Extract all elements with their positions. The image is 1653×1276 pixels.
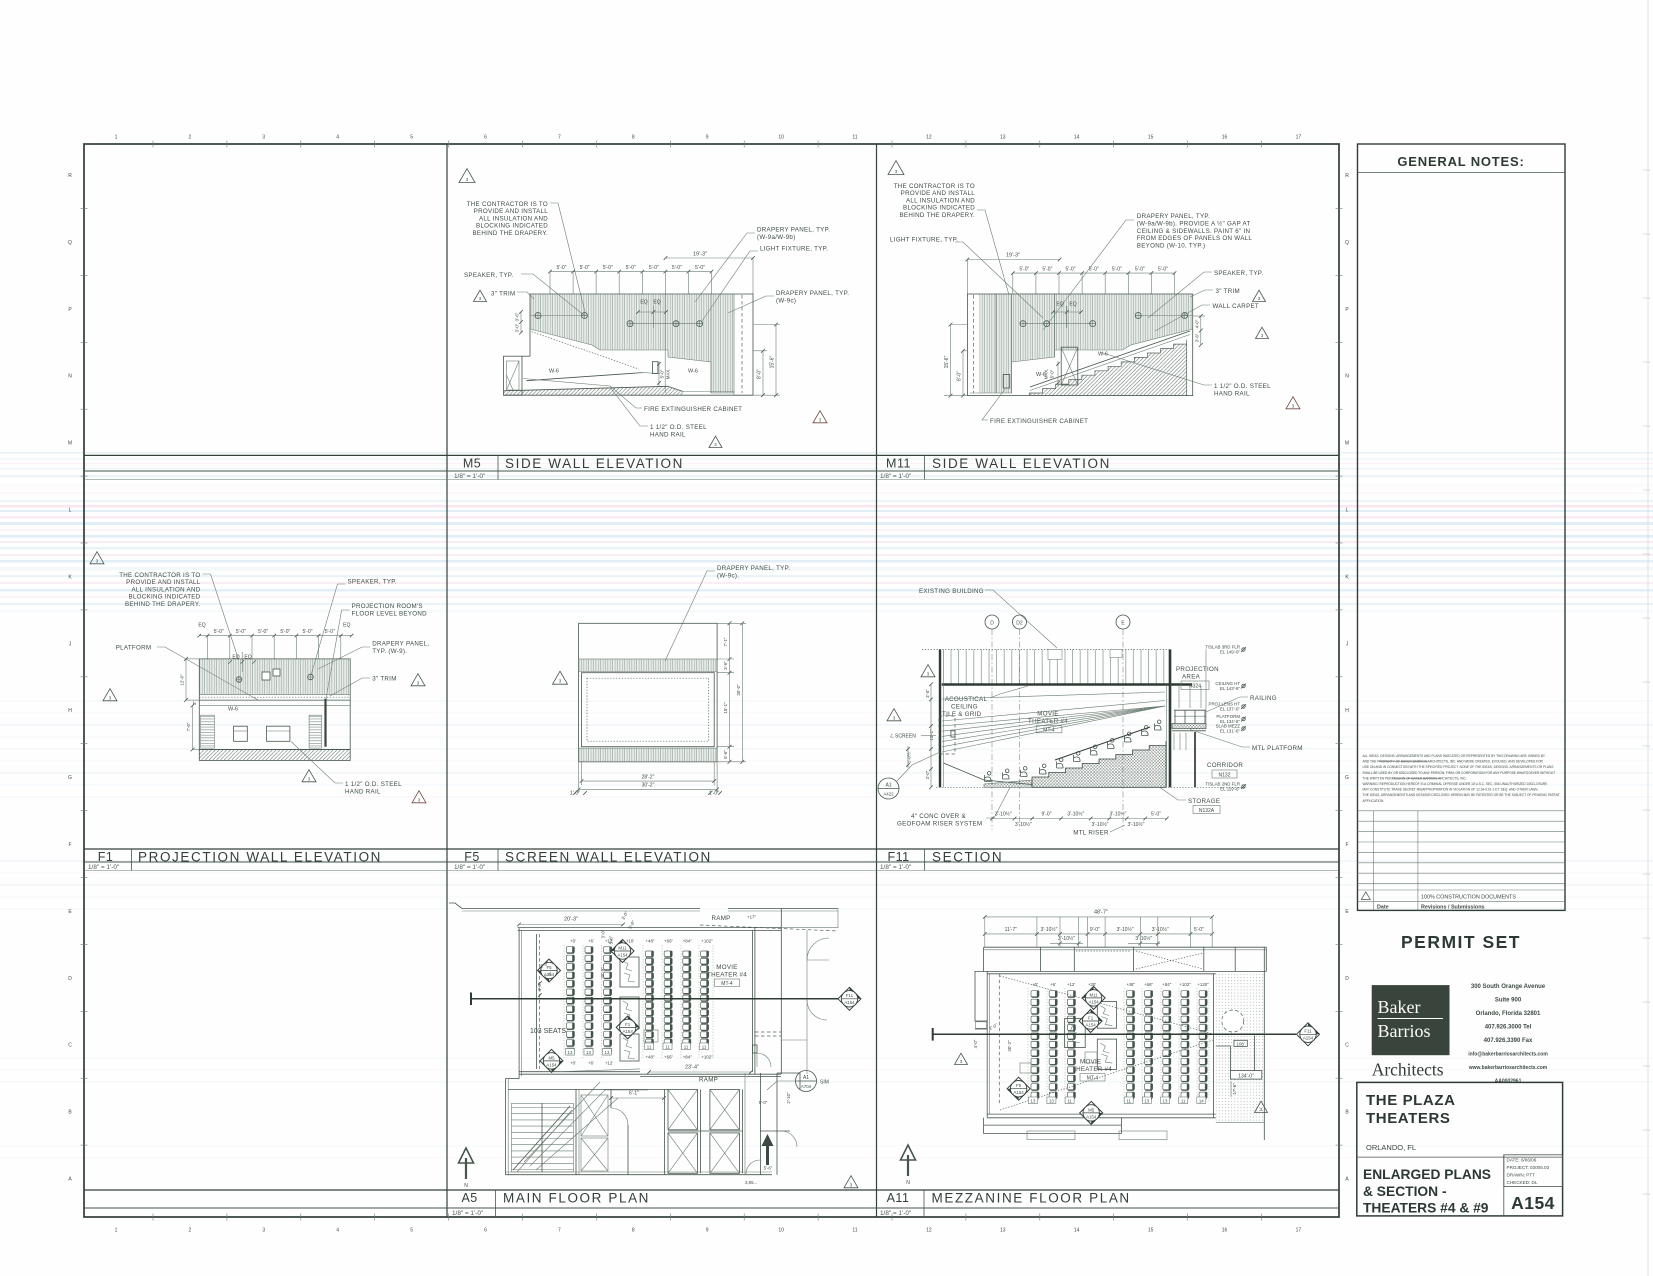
- svg-text:Q: Q: [68, 240, 72, 246]
- svg-text:11: 11: [1126, 1098, 1131, 1103]
- svg-text:N: N: [68, 374, 72, 380]
- svg-text:G: G: [1345, 775, 1349, 781]
- svg-text:BEHIND THE DRAPERY.: BEHIND THE DRAPERY.: [125, 601, 201, 608]
- svg-text:MTL RISER: MTL RISER: [1073, 830, 1109, 837]
- svg-text:11'-7": 11'-7": [1005, 927, 1018, 933]
- svg-text:CHECKED: DL: CHECKED: DL: [1507, 1180, 1538, 1185]
- svg-text:3'-6": 3'-6": [1194, 333, 1199, 342]
- svg-text:HAND RAIL: HAND RAIL: [1214, 391, 1250, 398]
- svg-text:13: 13: [1000, 135, 1006, 141]
- svg-text:M5: M5: [548, 1055, 555, 1060]
- svg-text:3'-10½": 3'-10½": [1015, 821, 1032, 828]
- svg-text:HAND RAIL: HAND RAIL: [345, 789, 381, 796]
- svg-text:1/8" = 1'-0": 1/8" = 1'-0": [880, 1210, 911, 1217]
- svg-text:M11: M11: [886, 457, 911, 471]
- svg-text:SIDE WALL ELEVATION: SIDE WALL ELEVATION: [932, 456, 1111, 471]
- svg-text:M: M: [1345, 441, 1349, 447]
- svg-text:BEHIND THE DRAPERY.: BEHIND THE DRAPERY.: [472, 230, 548, 237]
- svg-text:+48": +48": [1126, 982, 1135, 987]
- svg-text:R: R: [68, 173, 72, 179]
- svg-text:19'-3": 19'-3": [1006, 253, 1020, 259]
- svg-text:+102": +102": [701, 1055, 713, 1060]
- svg-text:7'-6": 7'-6": [186, 722, 191, 731]
- svg-text:N: N: [906, 1180, 910, 1186]
- svg-text:A704: A704: [801, 1084, 812, 1089]
- svg-text:G: G: [68, 775, 72, 781]
- svg-text:108': 108': [1237, 1041, 1245, 1046]
- svg-text:11: 11: [852, 1228, 857, 1234]
- svg-text:12: 12: [926, 135, 932, 141]
- svg-text:(W-9a/W-9b). PROVIDE A ½" GAP: (W-9a/W-9b). PROVIDE A ½" GAP AT: [1137, 220, 1251, 227]
- svg-text:13: 13: [586, 1050, 591, 1055]
- svg-text:6'-1": 6'-1": [629, 1091, 639, 1097]
- svg-text:N132: N132: [1219, 772, 1231, 778]
- svg-text:Revisions / Submissions: Revisions / Submissions: [1421, 904, 1485, 910]
- svg-text:A154: A154: [617, 952, 628, 957]
- svg-text:THEATER #4: THEATER #4: [1072, 1066, 1112, 1073]
- svg-text:SIM: SIM: [820, 1080, 829, 1086]
- svg-text:+6': +6': [588, 939, 594, 944]
- svg-text:H: H: [68, 708, 72, 714]
- svg-text:ENLARGED PLANS: ENLARGED PLANS: [1363, 1167, 1491, 1182]
- svg-text:1/8" = 1'-0": 1/8" = 1'-0": [454, 864, 485, 871]
- svg-text:3'-0": 3'-0": [601, 929, 606, 938]
- svg-text:D: D: [1345, 976, 1349, 982]
- svg-text:3'-10½": 3'-10½": [1040, 926, 1057, 933]
- svg-text:(W-9c).: (W-9c).: [717, 573, 739, 580]
- svg-text:9: 9: [706, 135, 709, 141]
- svg-text:EQ: EQ: [343, 623, 350, 629]
- svg-text:1 1/2" O.D. STEEL: 1 1/2" O.D. STEEL: [1214, 383, 1271, 390]
- svg-text:48'-7": 48'-7": [1094, 910, 1108, 916]
- svg-text:5'-0": 5'-0": [1135, 266, 1145, 272]
- svg-text:ALL INSULATION AND: ALL INSULATION AND: [906, 197, 975, 204]
- svg-text:5: 5: [410, 135, 413, 141]
- svg-text:MTL PLATFORM: MTL PLATFORM: [1252, 745, 1303, 752]
- svg-text:F11: F11: [887, 850, 909, 864]
- svg-text:5'-0": 5'-0": [626, 265, 636, 271]
- svg-text:5'-0": 5'-0": [214, 629, 224, 635]
- svg-text:100% CONSTRUCTION DOCUMENTS: 100% CONSTRUCTION DOCUMENTS: [1421, 894, 1516, 900]
- svg-text:3" TRIM: 3" TRIM: [372, 676, 396, 683]
- svg-text:5'-0": 5'-0": [759, 1100, 768, 1105]
- svg-text:W-6: W-6: [1098, 352, 1108, 358]
- svg-text:1/8" = 1'-0": 1/8" = 1'-0": [454, 473, 485, 480]
- svg-text:F5: F5: [464, 850, 480, 864]
- svg-text:R: R: [1345, 173, 1349, 179]
- svg-text:5'-0": 5'-0": [258, 629, 268, 635]
- svg-text:11: 11: [665, 1044, 670, 1049]
- svg-text:11: 11: [852, 135, 857, 141]
- svg-text:19'-3": 19'-3": [693, 252, 707, 258]
- svg-text:FIRE EXTINGUISHER CABINET: FIRE EXTINGUISHER CABINET: [644, 406, 742, 413]
- svg-text:5: 5: [410, 1228, 413, 1234]
- svg-text:+0': +0': [1032, 982, 1038, 987]
- svg-text:info@bakerbarriosarchitects.co: info@bakerbarriosarchitects.com: [1468, 1052, 1548, 1058]
- svg-text:PROVIDE AND INSTALL: PROVIDE AND INSTALL: [474, 208, 549, 215]
- svg-text:3'-10½": 3'-10½": [1109, 811, 1126, 818]
- svg-text:ORLANDO, FL: ORLANDO, FL: [1366, 1143, 1416, 1152]
- svg-text:Architects: Architects: [1372, 1060, 1444, 1080]
- svg-text:2: 2: [189, 135, 192, 141]
- svg-text:+66": +66": [664, 939, 673, 944]
- svg-text:A154: A154: [623, 1029, 634, 1034]
- svg-text:EXISTING BUILDING: EXISTING BUILDING: [919, 588, 984, 595]
- svg-text:3'-10½": 3'-10½": [1067, 811, 1084, 818]
- svg-text:5'-0": 5'-0": [557, 265, 567, 271]
- svg-text:5'-0": 5'-0": [1112, 266, 1122, 272]
- svg-text:GENERAL NOTES:: GENERAL NOTES:: [1397, 154, 1524, 169]
- svg-text:15'-1": 15'-1": [929, 729, 934, 741]
- svg-text:EL 137'-6": EL 137'-6": [1220, 707, 1240, 712]
- svg-text:PERMIT SET: PERMIT SET: [1401, 932, 1521, 952]
- svg-text:14: 14: [1074, 1228, 1080, 1234]
- svg-text:3'-0": 3'-0": [925, 770, 930, 779]
- svg-text:DRAPERY PANEL, TYP.: DRAPERY PANEL, TYP.: [1137, 213, 1210, 220]
- svg-text:N: N: [464, 1183, 468, 1189]
- svg-text:BLOCKING INDICATED: BLOCKING INDICATED: [476, 223, 548, 230]
- svg-text:6: 6: [484, 135, 487, 141]
- svg-text:TYP. (W-9).: TYP. (W-9).: [372, 648, 407, 655]
- svg-text:L: L: [1346, 508, 1349, 514]
- svg-text:(W-9a/W-9b): (W-9a/W-9b): [757, 234, 795, 241]
- svg-text:M5: M5: [1088, 1107, 1095, 1112]
- svg-text:1/8" = 1'-0": 1/8" = 1'-0": [452, 1210, 483, 1217]
- svg-text:5'-0": 5'-0": [649, 265, 659, 271]
- svg-text:1/8" = 1'-0": 1/8" = 1'-0": [880, 864, 911, 871]
- svg-text:8'-0": 8'-0": [757, 369, 763, 379]
- svg-text:11: 11: [647, 1044, 652, 1049]
- svg-text:4'-0": 4'-0": [1194, 319, 1199, 328]
- svg-text:13: 13: [568, 1050, 573, 1055]
- svg-text:3'-6": 3'-6": [515, 312, 520, 321]
- svg-text:+0': +0': [570, 939, 576, 944]
- svg-text:N132A: N132A: [1199, 808, 1215, 814]
- svg-text:3" TRIM: 3" TRIM: [491, 291, 515, 298]
- svg-text:L: L: [69, 508, 72, 514]
- svg-text:6: 6: [484, 1228, 487, 1234]
- svg-text:EL 143'-6": EL 143'-6": [1220, 686, 1240, 691]
- svg-text:+84": +84": [683, 1055, 692, 1060]
- svg-text:SPEAKER, TYP.: SPEAKER, TYP.: [1214, 270, 1263, 277]
- svg-text:FIRE EXTINGUISHER CABINET: FIRE EXTINGUISHER CABINET: [990, 418, 1088, 425]
- svg-text:1 1/2" O.D. STEEL: 1 1/2" O.D. STEEL: [650, 424, 707, 431]
- svg-text:5'-0": 5'-0": [280, 629, 290, 635]
- svg-text:A154: A154: [1088, 999, 1099, 1004]
- svg-text:8: 8: [632, 135, 635, 141]
- svg-text:DATE: 6/06/06: DATE: 6/06/06: [1507, 1158, 1537, 1163]
- svg-text:1'-0": 1'-0": [709, 791, 719, 797]
- svg-text:A154: A154: [1085, 1022, 1096, 1027]
- svg-text:11: 11: [1067, 1098, 1072, 1103]
- svg-text:Baker: Baker: [1378, 997, 1421, 1017]
- svg-text:11: 11: [684, 1044, 689, 1049]
- svg-text:H: H: [1345, 708, 1349, 714]
- svg-text:1'-0½": 1'-0½": [907, 750, 912, 763]
- svg-text:+30': +30': [1088, 982, 1096, 987]
- svg-text:& SECTION -: & SECTION -: [1363, 1184, 1447, 1199]
- svg-text:A5: A5: [461, 1191, 477, 1205]
- svg-text:PROJECT: 03005.03: PROJECT: 03005.03: [1507, 1165, 1550, 1170]
- svg-text:1 1/2" O.D. STEEL: 1 1/2" O.D. STEEL: [345, 781, 402, 788]
- svg-text:17'-5": 17'-5": [1232, 1083, 1237, 1095]
- svg-text:EQ: EQ: [1056, 302, 1063, 308]
- svg-text:+84": +84": [683, 939, 692, 944]
- svg-text:5'-0": 5'-0": [603, 265, 613, 271]
- svg-text:MAY CONSTITUTE TRADE SECRET MI: MAY CONSTITUTE TRADE SECRET MISAPPROPRIA…: [1363, 788, 1539, 792]
- svg-text:EQ: EQ: [1069, 302, 1076, 308]
- svg-text:EQ: EQ: [198, 623, 205, 629]
- svg-text:5'-0": 5'-0": [303, 629, 313, 635]
- svg-text:DRAPERY PANEL, TYP.: DRAPERY PANEL, TYP.: [717, 565, 790, 572]
- svg-text:30'-0": 30'-0": [736, 684, 741, 696]
- svg-text:LIGHT FIXTURE, TYP.: LIGHT FIXTURE, TYP.: [890, 237, 958, 244]
- svg-text:3'-10½": 3'-10½": [1117, 926, 1134, 933]
- svg-text:EQ: EQ: [653, 300, 660, 306]
- svg-text:13: 13: [1163, 1098, 1168, 1103]
- svg-text:3'-10½": 3'-10½": [1127, 821, 1144, 828]
- svg-text:17: 17: [1296, 135, 1302, 141]
- svg-text:GEOFOAM RISER SYSTEM: GEOFOAM RISER SYSTEM: [897, 821, 982, 828]
- svg-text:13: 13: [1049, 1098, 1054, 1103]
- svg-text:W-6: W-6: [228, 707, 238, 713]
- svg-text:THE PLAZA: THE PLAZA: [1366, 1092, 1456, 1109]
- svg-text:13: 13: [1000, 1228, 1006, 1234]
- svg-text:134'-0": 134'-0": [1238, 1073, 1254, 1079]
- svg-text:+66": +66": [1144, 982, 1153, 987]
- svg-text:5'-0": 5'-0": [1019, 266, 1029, 272]
- svg-text:7'-1": 7'-1": [723, 637, 728, 646]
- svg-text:USE ON AND IN CONNECTION WITH: USE ON AND IN CONNECTION WITH THE SPECIF…: [1363, 765, 1554, 769]
- svg-text:5'-0": 5'-0": [672, 265, 682, 271]
- svg-text:15: 15: [1148, 135, 1154, 141]
- svg-text:SIDE WALL ELEVATION: SIDE WALL ELEVATION: [505, 456, 684, 471]
- svg-text:THEATERS: THEATERS: [1366, 1110, 1451, 1127]
- svg-text:5'-6": 5'-6": [764, 1166, 773, 1171]
- svg-text:SPEAKER, TYP.: SPEAKER, TYP.: [348, 579, 397, 586]
- svg-text:15: 15: [1148, 1228, 1154, 1234]
- svg-text:3'-10½": 3'-10½": [1135, 935, 1152, 942]
- svg-text:10: 10: [778, 1228, 784, 1234]
- svg-text:RAMP: RAMP: [712, 915, 731, 922]
- svg-text:14: 14: [1074, 135, 1080, 141]
- svg-text:3: 3: [262, 135, 265, 141]
- svg-text:ℒ SCREEN: ℒ SCREEN: [890, 734, 916, 740]
- svg-text:MT-4: MT-4: [721, 981, 733, 987]
- svg-text:ALL IDEAS, DESIGNS, ARRANGEMEN: ALL IDEAS, DESIGNS, ARRANGEMENTS AND PLA…: [1363, 754, 1546, 758]
- svg-text:16: 16: [1222, 135, 1228, 141]
- svg-text:9'-0": 9'-0": [1042, 812, 1052, 818]
- svg-text:3: 3: [262, 1228, 265, 1234]
- svg-text:FROM EDGES OF PANELS ON WALL: FROM EDGES OF PANELS ON WALL: [1137, 235, 1253, 242]
- svg-text:30'-2": 30'-2": [1007, 1040, 1012, 1052]
- svg-text:SCREEN WALL ELEVATION: SCREEN WALL ELEVATION: [505, 850, 712, 865]
- svg-text:5'-0": 5'-0": [695, 265, 705, 271]
- svg-text:THE CONTRACTOR IS TO: THE CONTRACTOR IS TO: [467, 201, 548, 208]
- svg-text:SECTION: SECTION: [932, 850, 1003, 865]
- svg-text:(W-9c): (W-9c): [776, 298, 796, 305]
- svg-text:F5: F5: [1016, 1083, 1022, 1088]
- svg-text:103 SEATS: 103 SEATS: [530, 1028, 566, 1035]
- svg-text:+12': +12': [1067, 982, 1075, 987]
- svg-text:PROVIDE AND INSTALL: PROVIDE AND INSTALL: [901, 190, 976, 197]
- svg-text:+102": +102": [1179, 982, 1191, 987]
- svg-text:3'-10½": 3'-10½": [1058, 935, 1075, 942]
- svg-text:1/8" = 1'-0": 1/8" = 1'-0": [88, 864, 119, 871]
- svg-text:5'-0": 5'-0": [660, 369, 665, 378]
- svg-text:W-6: W-6: [688, 369, 698, 375]
- svg-text:4: 4: [336, 135, 339, 141]
- svg-text:EL 119'-6": EL 119'-6": [1220, 787, 1240, 792]
- svg-text:A154: A154: [546, 1062, 557, 1067]
- svg-text:A1: A1: [803, 1075, 809, 1081]
- svg-text:5'-0": 5'-0": [1089, 266, 1099, 272]
- svg-text:MAIN FLOOR PLAN: MAIN FLOOR PLAN: [503, 1191, 650, 1206]
- svg-text:D: D: [990, 620, 994, 626]
- svg-text:AREA: AREA: [1182, 674, 1201, 681]
- svg-text:3'-5": 3'-5": [925, 689, 930, 698]
- svg-text:MAX.: MAX.: [1044, 369, 1049, 380]
- svg-text:MEZZANINE FLOOR PLAN: MEZZANINE FLOOR PLAN: [932, 1191, 1131, 1206]
- svg-text:ALL INSULATION AND: ALL INSULATION AND: [479, 215, 548, 222]
- svg-text:ALL INSULATION AND: ALL INSULATION AND: [131, 586, 200, 593]
- svg-text:A1: A1: [885, 783, 891, 789]
- svg-text:30'-9": 30'-9": [600, 967, 605, 979]
- svg-text:www.bakerbarriosarchitects.com: www.bakerbarriosarchitects.com: [1468, 1065, 1548, 1071]
- svg-text:7: 7: [558, 1228, 561, 1234]
- svg-text:A154: A154: [1511, 1193, 1555, 1213]
- svg-text:+17": +17": [747, 915, 756, 920]
- svg-text:SHALL BE USED BY OR DISCLOSED: SHALL BE USED BY OR DISCLOSED TO ANY PER…: [1363, 771, 1556, 775]
- svg-text:F1: F1: [1088, 1015, 1094, 1020]
- svg-text:A154: A154: [844, 1000, 855, 1005]
- svg-text:A154: A154: [1013, 1090, 1024, 1095]
- svg-text:Date: Date: [1377, 904, 1389, 910]
- svg-text:5'-0": 5'-0": [1042, 266, 1052, 272]
- svg-text:3'-6": 3'-6": [723, 661, 728, 670]
- svg-text:28'-2": 28'-2": [642, 774, 655, 780]
- svg-text:F1: F1: [625, 1022, 631, 1027]
- svg-text:300 South Orange Avenue: 300 South Orange Avenue: [1471, 984, 1546, 990]
- svg-text:+84": +84": [1162, 982, 1171, 987]
- svg-text:PLATFORM: PLATFORM: [116, 645, 152, 652]
- svg-text:13: 13: [605, 1050, 610, 1055]
- svg-text:THEATERS #4 & #9: THEATERS #4 & #9: [1363, 1201, 1489, 1216]
- svg-text:M11: M11: [618, 945, 627, 950]
- svg-text:RAMP: RAMP: [699, 1077, 718, 1084]
- svg-text:A11: A11: [887, 1191, 910, 1205]
- svg-text:FLOOR LEVEL BEYOND: FLOOR LEVEL BEYOND: [352, 611, 428, 618]
- svg-text:BEHIND THE DRAPERY.: BEHIND THE DRAPERY.: [899, 212, 975, 219]
- svg-text:LIGHT FIXTURE, TYP.: LIGHT FIXTURE, TYP.: [760, 246, 828, 253]
- svg-text:CEILING & SIDEWALLS. PAINT 6": CEILING & SIDEWALLS. PAINT 6" IN: [1137, 228, 1250, 235]
- svg-text:5'-0": 5'-0": [1151, 812, 1161, 818]
- svg-text:14: 14: [1199, 1098, 1204, 1103]
- svg-text:3" TRIM: 3" TRIM: [1216, 288, 1240, 295]
- svg-text:AA0002961: AA0002961: [1495, 1079, 1522, 1085]
- svg-text:12: 12: [926, 1228, 932, 1234]
- svg-text:3'-0": 3'-0": [515, 323, 520, 332]
- svg-text:F11: F11: [846, 993, 854, 998]
- svg-text:+48": +48": [645, 939, 654, 944]
- svg-text:BEYOND (W-10, TYP.): BEYOND (W-10, TYP.): [1137, 243, 1206, 250]
- svg-text:5'-0": 5'-0": [1050, 369, 1055, 378]
- svg-text:4'-0": 4'-0": [973, 1039, 978, 1048]
- svg-text:WALL CARPET: WALL CARPET: [1213, 303, 1260, 310]
- svg-text:MAX.: MAX.: [666, 369, 671, 380]
- svg-text:15'-1": 15'-1": [723, 702, 728, 714]
- svg-text:1/8" = 1'-0": 1/8" = 1'-0": [880, 473, 911, 480]
- svg-text:EQ: EQ: [640, 300, 647, 306]
- svg-text:M5: M5: [463, 457, 481, 471]
- svg-text:M11: M11: [1089, 992, 1098, 997]
- svg-text:PROJECTION: PROJECTION: [1176, 666, 1219, 673]
- svg-text:30'-2": 30'-2": [642, 783, 655, 789]
- svg-text:Suite 900: Suite 900: [1495, 998, 1522, 1004]
- svg-text:N324: N324: [1189, 684, 1201, 690]
- svg-text:7: 7: [558, 135, 561, 141]
- svg-text:MT-4: MT-4: [1087, 1075, 1099, 1081]
- svg-text:THE CONTRACTOR IS TO: THE CONTRACTOR IS TO: [894, 183, 975, 190]
- svg-text:407.926.3390 Fax: 407.926.3390 Fax: [1484, 1038, 1533, 1044]
- svg-text:407.926.3000 Tel: 407.926.3000 Tel: [1485, 1025, 1532, 1031]
- svg-text:D2: D2: [1016, 620, 1023, 626]
- svg-text:N: N: [1345, 374, 1349, 380]
- svg-text:13: 13: [1031, 1098, 1036, 1103]
- svg-text:3,85...: 3,85...: [745, 1180, 757, 1185]
- svg-text:F1: F1: [98, 850, 114, 864]
- svg-text:PROVIDE AND INSTALL: PROVIDE AND INSTALL: [126, 579, 201, 586]
- svg-text:A422: A422: [883, 792, 894, 797]
- svg-text:BLOCKING INDICATED: BLOCKING INDICATED: [129, 594, 201, 601]
- svg-text:+0': +0': [570, 1061, 576, 1066]
- svg-text:Orlando, Florida 32801: Orlando, Florida 32801: [1476, 1011, 1541, 1017]
- svg-text:D: D: [68, 976, 72, 982]
- svg-text:CEILING: CEILING: [951, 704, 978, 711]
- svg-text:5'-0": 5'-0": [580, 265, 590, 271]
- svg-text:DRAPERY PANEL,: DRAPERY PANEL,: [372, 641, 429, 648]
- svg-text:CORRIDOR: CORRIDOR: [1207, 762, 1243, 769]
- svg-text:APPLICATION.: APPLICATION.: [1363, 799, 1385, 803]
- svg-text:5'-6": 5'-6": [723, 750, 728, 759]
- svg-text:PROJECTION WALL ELEVATION: PROJECTION WALL ELEVATION: [138, 850, 382, 865]
- svg-text:DRAPERY PANEL, TYP.: DRAPERY PANEL, TYP.: [776, 290, 849, 297]
- svg-text:4" CONC OVER &: 4" CONC OVER &: [911, 813, 966, 820]
- svg-text:8: 8: [632, 1228, 635, 1234]
- svg-text:17: 17: [1296, 1228, 1302, 1234]
- svg-text:1: 1: [115, 135, 118, 141]
- svg-text:11: 11: [702, 1044, 707, 1049]
- svg-text:+120": +120": [1197, 982, 1209, 987]
- svg-text:MOVIE: MOVIE: [1080, 1059, 1101, 1066]
- svg-text:5'-0": 5'-0": [1194, 927, 1204, 933]
- svg-text:THE IDEAS, ARRANGEMENTS AND DE: THE IDEAS, ARRANGEMENTS AND DESIGNS DISC…: [1363, 793, 1560, 797]
- svg-text:DRAWN: PTT: DRAWN: PTT: [1507, 1173, 1536, 1178]
- svg-text:MOVIE: MOVIE: [716, 964, 737, 971]
- svg-text:9'-0": 9'-0": [1090, 927, 1100, 933]
- svg-text:5'-0": 5'-0": [236, 629, 246, 635]
- svg-text:8'-0": 8'-0": [957, 371, 963, 381]
- svg-text:20'-3": 20'-3": [564, 917, 578, 923]
- svg-text:+12': +12': [605, 1061, 613, 1066]
- svg-text:EL 149'-0": EL 149'-0": [1220, 650, 1240, 655]
- svg-text:F11: F11: [1304, 1029, 1312, 1034]
- svg-text:ACOUSTICAL: ACOUSTICAL: [945, 696, 988, 703]
- svg-text:5'-0": 5'-0": [325, 629, 335, 635]
- svg-text:+48": +48": [645, 1055, 654, 1060]
- svg-text:TILE & GRID: TILE & GRID: [942, 711, 982, 718]
- svg-text:BLOCKING INDICATED: BLOCKING INDICATED: [903, 205, 975, 212]
